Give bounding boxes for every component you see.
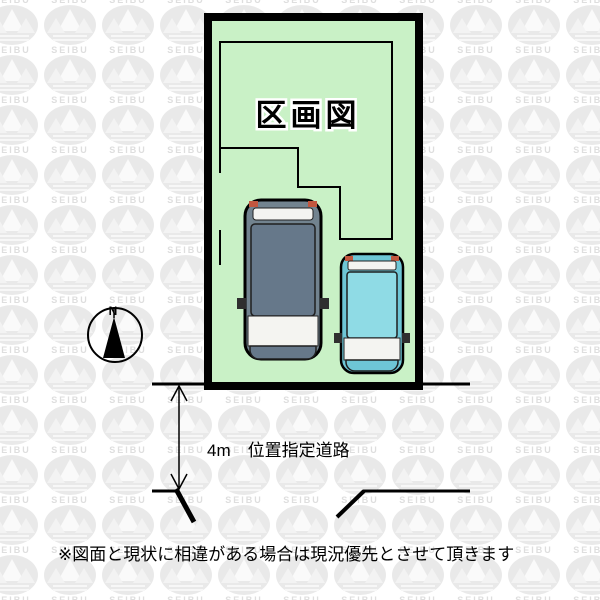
disclaimer-text: ※図面と現状に相違がある場合は現況優先とさせて頂きます [58, 545, 514, 564]
large-car-rear-window [253, 208, 313, 220]
north-label: N [109, 304, 118, 318]
small-car-rear-window [348, 261, 396, 270]
small-car-mirror-right [402, 333, 410, 343]
small-car-taillight-right [391, 256, 399, 261]
small-car-hood [346, 360, 398, 371]
small-car-taillight-left [345, 256, 353, 261]
small-car-roof [347, 272, 397, 338]
large-car-taillight-right [308, 201, 317, 207]
plot-plan-image: SEIBU 区画図 N [0, 0, 600, 600]
plot-title: 区画図 [256, 98, 361, 133]
large-car-taillight-left [249, 201, 258, 207]
road-label: 4m 位置指定道路 [207, 441, 350, 460]
large-car [237, 200, 329, 359]
large-car-mirror-left [237, 298, 246, 309]
large-car-mirror-right [320, 298, 329, 309]
large-car-windshield [248, 316, 318, 346]
small-car [334, 254, 410, 373]
plot-plan-svg: SEIBU 区画図 N [0, 0, 600, 600]
large-car-hood [250, 346, 316, 359]
small-car-mirror-left [334, 333, 342, 343]
large-car-roof [251, 224, 315, 316]
small-car-windshield [344, 338, 400, 360]
